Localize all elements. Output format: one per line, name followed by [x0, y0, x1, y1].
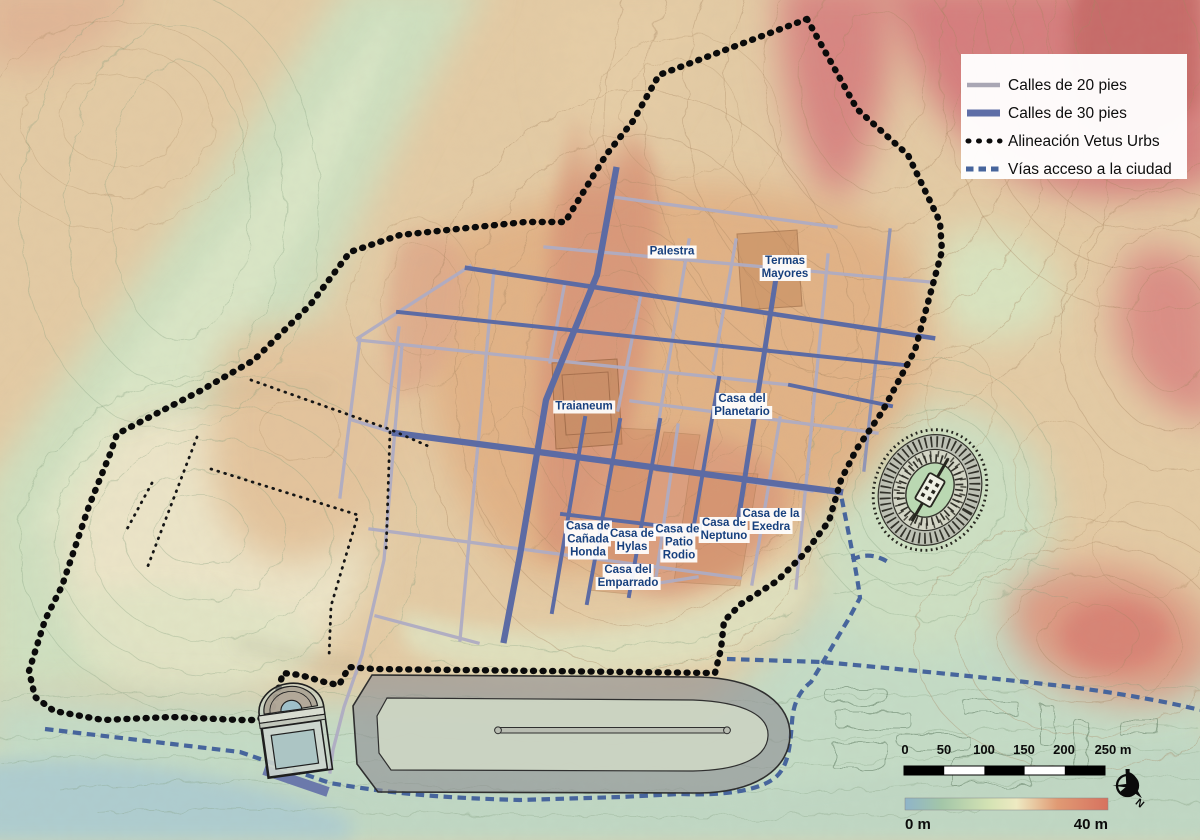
svg-text:250 m: 250 m — [1095, 742, 1132, 757]
svg-text:0: 0 — [901, 742, 908, 757]
svg-text:100: 100 — [973, 742, 995, 757]
svg-text:50: 50 — [937, 742, 951, 757]
svg-text:N: N — [1133, 796, 1147, 810]
svg-text:0 m: 0 m — [905, 816, 931, 833]
svg-text:Calles de 20 pies: Calles de 20 pies — [1008, 77, 1127, 94]
svg-text:40 m: 40 m — [1074, 816, 1108, 833]
svg-text:Calles de 30 pies: Calles de 30 pies — [1008, 105, 1127, 122]
svg-text:Vías acceso a la ciudad: Vías acceso a la ciudad — [1008, 161, 1172, 178]
svg-text:150: 150 — [1013, 742, 1035, 757]
svg-text:200: 200 — [1053, 742, 1075, 757]
svg-text:Alineación Vetus Urbs: Alineación Vetus Urbs — [1008, 133, 1160, 150]
